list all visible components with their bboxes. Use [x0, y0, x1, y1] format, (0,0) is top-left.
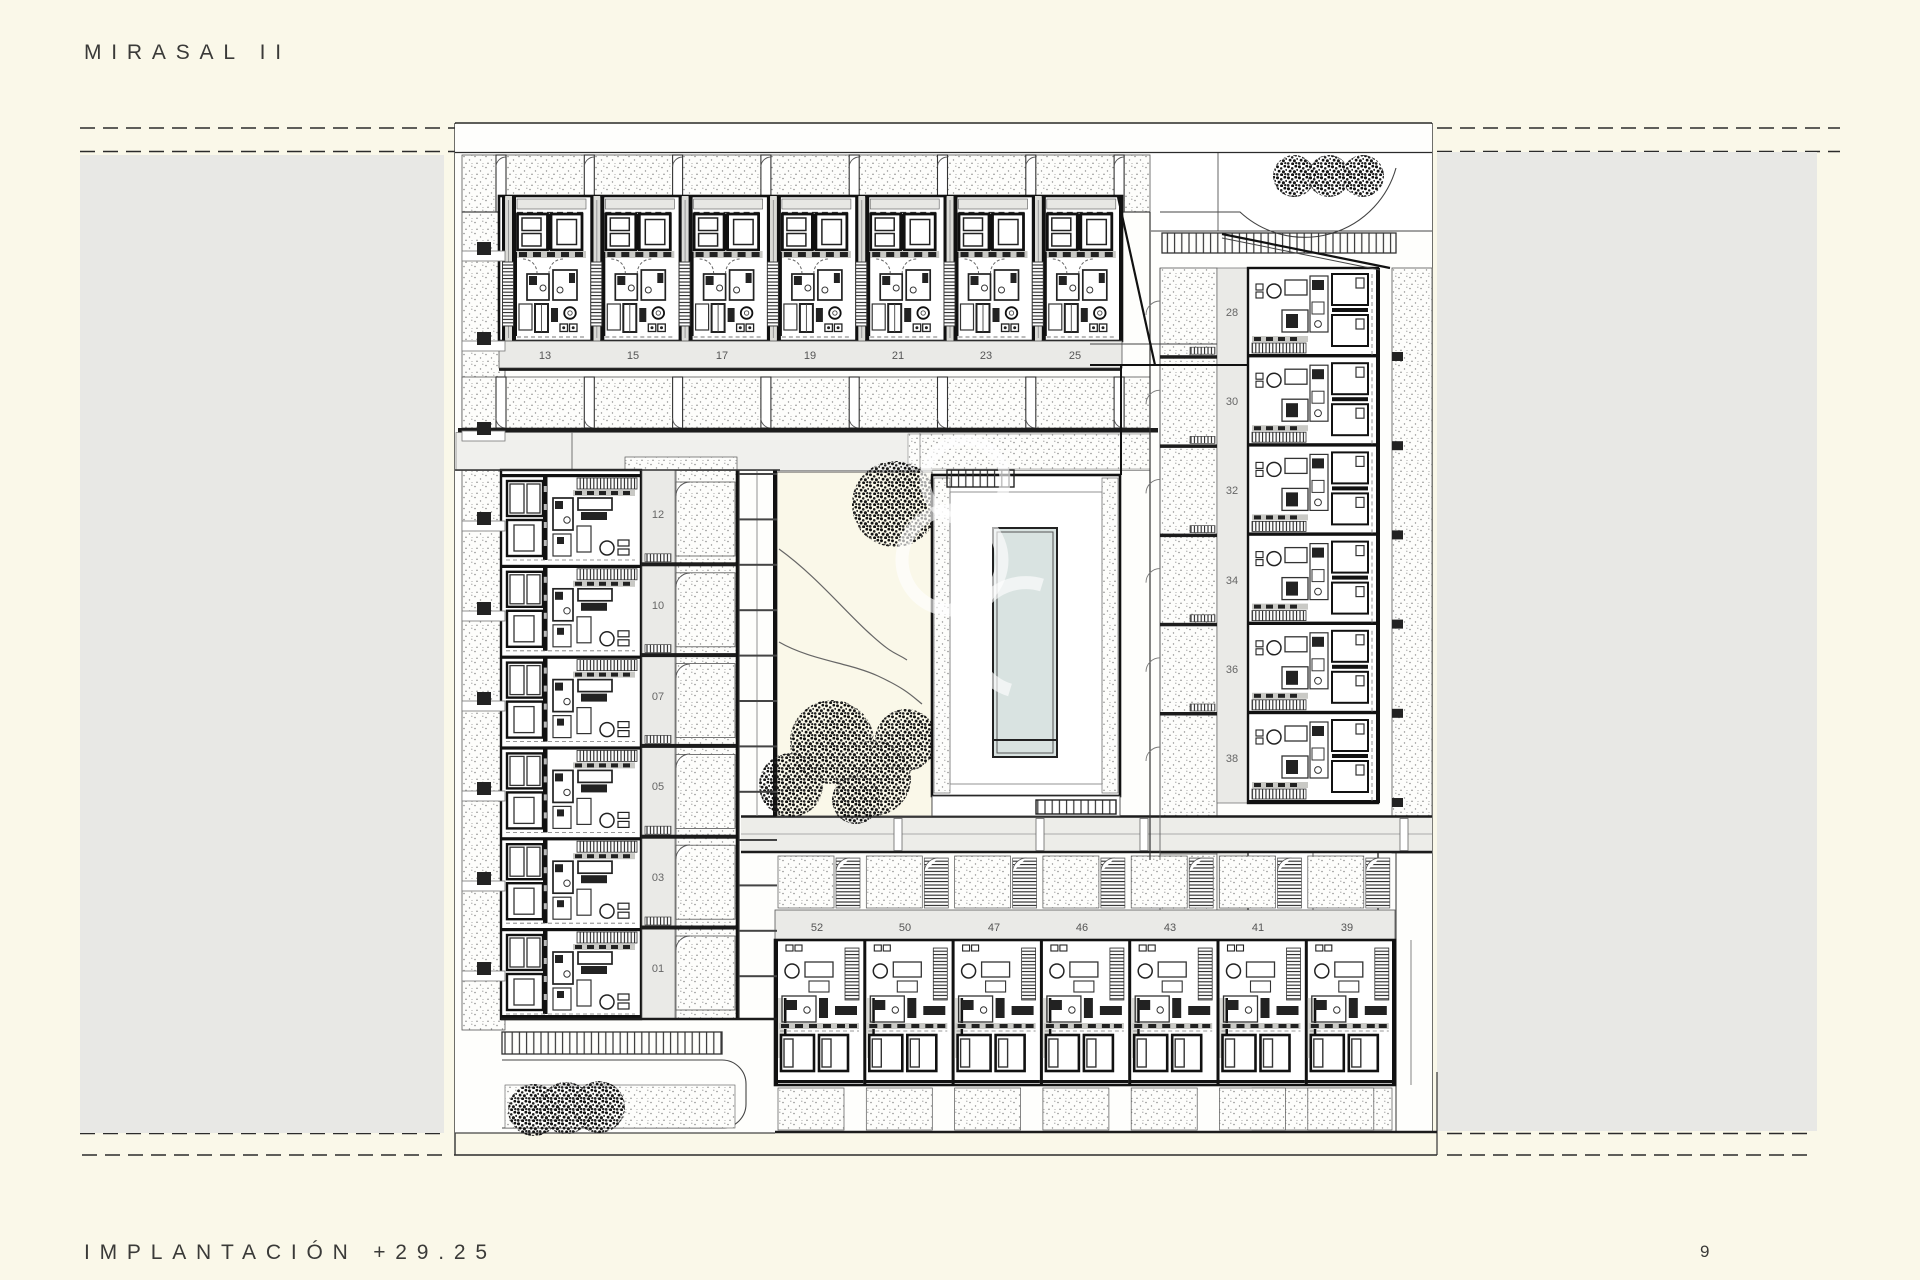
svg-text:21: 21: [892, 350, 904, 362]
svg-text:25: 25: [1069, 350, 1081, 362]
svg-text:12: 12: [652, 509, 664, 521]
svg-text:05: 05: [652, 781, 664, 793]
svg-text:47: 47: [988, 922, 1000, 934]
svg-text:39: 39: [1341, 922, 1353, 934]
svg-text:07: 07: [652, 691, 664, 703]
svg-text:50: 50: [899, 922, 911, 934]
svg-text:19: 19: [804, 350, 816, 362]
svg-text:36: 36: [1226, 664, 1238, 676]
svg-text:30: 30: [1226, 396, 1238, 408]
svg-text:38: 38: [1226, 753, 1238, 765]
svg-text:17: 17: [716, 350, 728, 362]
svg-text:01: 01: [652, 963, 664, 975]
svg-text:23: 23: [980, 350, 992, 362]
svg-text:52: 52: [811, 922, 823, 934]
svg-text:34: 34: [1226, 575, 1238, 587]
svg-text:41: 41: [1252, 922, 1264, 934]
svg-text:28: 28: [1226, 307, 1238, 319]
svg-text:15: 15: [627, 350, 639, 362]
svg-text:03: 03: [652, 872, 664, 884]
svg-text:10: 10: [652, 600, 664, 612]
svg-text:9: 9: [1700, 1242, 1709, 1261]
svg-text:46: 46: [1076, 922, 1088, 934]
svg-text:MIRASAL II: MIRASAL II: [84, 41, 291, 64]
svg-text:32: 32: [1226, 485, 1238, 497]
svg-text:43: 43: [1164, 922, 1176, 934]
svg-text:13: 13: [539, 350, 551, 362]
svg-text:IMPLANTACIÓN +29.25: IMPLANTACIÓN +29.25: [84, 1241, 497, 1264]
